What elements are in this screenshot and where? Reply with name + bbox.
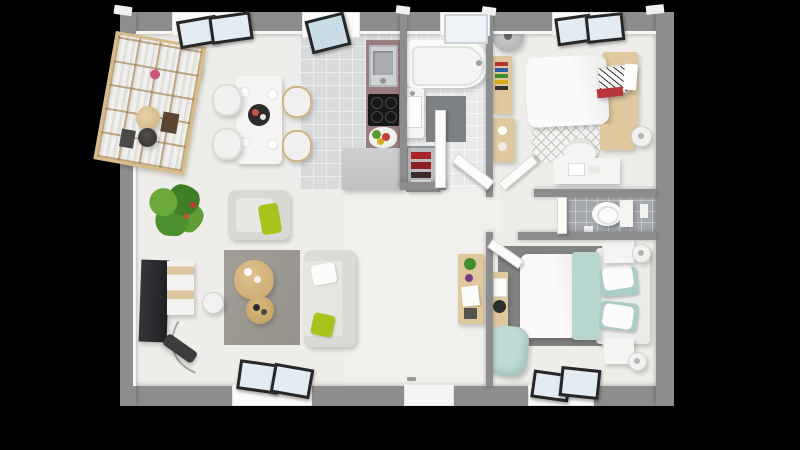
- entrance-door-opening: [404, 384, 454, 406]
- bed2-white-pillow: [601, 303, 634, 330]
- fruit-yellow: [377, 138, 384, 145]
- console-box: [464, 308, 477, 319]
- tv-panel: [139, 260, 170, 343]
- book-spine: [495, 68, 508, 72]
- dresser-item: [498, 142, 507, 151]
- white-pillow: [310, 262, 337, 286]
- toilet-cistern: [620, 200, 633, 227]
- burner: [385, 97, 397, 109]
- toilet-bowl: [592, 202, 622, 226]
- bedroom1-table-lamp: [631, 126, 652, 147]
- lamp-center: [638, 133, 644, 139]
- wall-bedroom1-wc: [534, 189, 656, 197]
- sink-basin: [373, 51, 393, 75]
- burner: [371, 97, 383, 109]
- bookshelf-dark-cubby: [160, 112, 179, 134]
- side-stool: [136, 106, 160, 130]
- dark-towel: [411, 172, 431, 178]
- lamp-center: [638, 250, 644, 256]
- toilet-seat: [597, 206, 619, 225]
- floor-plan-render: [0, 0, 800, 450]
- armchair: [228, 190, 290, 240]
- lime-pillow: [258, 202, 283, 235]
- cooktop: [368, 94, 399, 126]
- red-towel: [411, 152, 431, 159]
- window-pane: [208, 11, 253, 45]
- bed2-teal-throw: [572, 252, 600, 340]
- red-flower: [184, 214, 189, 219]
- basin-faucet: [410, 91, 415, 96]
- shower-door: [435, 110, 446, 188]
- window-pane: [559, 366, 602, 400]
- bed2-white-pillow: [601, 264, 634, 291]
- lamp-center: [634, 358, 640, 364]
- book-ledge: [492, 56, 512, 114]
- food-item: [252, 109, 259, 116]
- bedroom2-table-lamp: [632, 244, 651, 263]
- dining-table: [236, 76, 282, 164]
- cup: [254, 276, 261, 283]
- wall-kitchen-bathroom: [400, 12, 407, 186]
- wall-wc-bedroom2: [518, 232, 656, 240]
- wall-cap: [113, 5, 132, 16]
- book-spine: [495, 80, 508, 84]
- console-papers: [461, 285, 480, 307]
- serving-tray: [248, 104, 270, 126]
- arc-lamp-base: [202, 292, 224, 314]
- vase: [138, 128, 157, 147]
- bedroom1-desk: [554, 158, 620, 184]
- kitchen-base-cabinet: [342, 148, 402, 190]
- bedroom2-nightstand: [604, 238, 634, 263]
- potted-plant: [146, 184, 204, 236]
- wc-door: [557, 197, 567, 234]
- coffee-table-small: [246, 296, 274, 324]
- laptop: [568, 163, 585, 176]
- bed2-duvet: [520, 254, 578, 338]
- coffee-table-large: [234, 260, 274, 300]
- burner: [371, 111, 383, 123]
- bookshelf-accent: [149, 69, 161, 81]
- desk-tablet: [493, 278, 507, 297]
- window-pane: [585, 12, 626, 44]
- bed1-white-pillow: [623, 64, 638, 91]
- sofa-armrest: [304, 250, 342, 261]
- book-spine: [495, 86, 508, 90]
- notebook: [588, 165, 600, 174]
- food-item: [260, 114, 266, 120]
- wall-hall-bedroom2: [486, 232, 493, 386]
- bathtub: [406, 40, 488, 88]
- dining-chair: [212, 84, 242, 116]
- hall-console-table: [458, 254, 484, 324]
- wood-dresser: [491, 118, 515, 162]
- kitchen-sink: [369, 45, 398, 87]
- red-flower: [190, 202, 196, 208]
- desk-dark-plant: [493, 300, 506, 313]
- book-spine: [495, 62, 508, 66]
- decor-item: [261, 309, 267, 315]
- sofa-backrest: [342, 250, 356, 347]
- cup: [244, 268, 252, 276]
- window-pane-frosted: [444, 14, 488, 44]
- decor-item: [253, 304, 260, 311]
- red-towel: [411, 162, 431, 169]
- bedroom2-table-lamp: [628, 352, 647, 371]
- wc-wall-fixture: [640, 204, 648, 218]
- bathtub-faucet: [476, 60, 482, 66]
- bath-mat: [426, 96, 466, 142]
- bookshelf-dark-cubby: [119, 129, 136, 149]
- console-plant: [464, 258, 476, 270]
- book-spine: [495, 74, 508, 78]
- bathtub-basin: [412, 46, 484, 86]
- sofa-armrest: [304, 336, 342, 347]
- bedroom1-nightstand: [600, 124, 634, 150]
- lime-pillow: [310, 312, 336, 338]
- burner: [385, 111, 397, 123]
- washbasin: [406, 96, 422, 128]
- wall-cap: [646, 4, 665, 15]
- wall-right: [656, 12, 674, 406]
- entrance-door-handle: [407, 377, 416, 381]
- dining-chair: [212, 128, 242, 160]
- sofa: [304, 250, 356, 347]
- dining-chair: [282, 86, 312, 118]
- plate: [268, 140, 277, 149]
- plate: [268, 90, 277, 99]
- dresser-item: [498, 126, 507, 135]
- sink-faucet: [380, 78, 386, 84]
- fruit-bowl: [369, 127, 397, 148]
- dining-chair: [282, 130, 312, 162]
- console-flowers: [465, 274, 473, 282]
